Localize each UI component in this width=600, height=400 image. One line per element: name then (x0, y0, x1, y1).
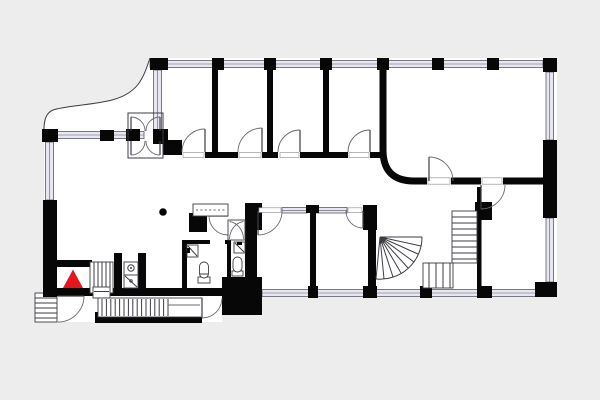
sink-shower-unit (124, 262, 138, 288)
north-window-band (150, 61, 543, 68)
floor-plan-canvas (0, 0, 600, 400)
washbasin-2 (234, 242, 245, 253)
shower-cabin (228, 220, 245, 240)
west-lower-window (46, 142, 54, 200)
south-window-band (262, 290, 543, 297)
toilet-1 (198, 262, 210, 283)
counter-desk (193, 204, 228, 216)
washbasin-1 (187, 245, 198, 257)
toilet-2 (232, 257, 243, 276)
structural-column (159, 208, 167, 216)
entry-ramp-stair (98, 298, 202, 317)
entry-inner-steps (90, 262, 113, 298)
floor-plan-drawing (0, 0, 600, 400)
west-wall (43, 200, 57, 297)
